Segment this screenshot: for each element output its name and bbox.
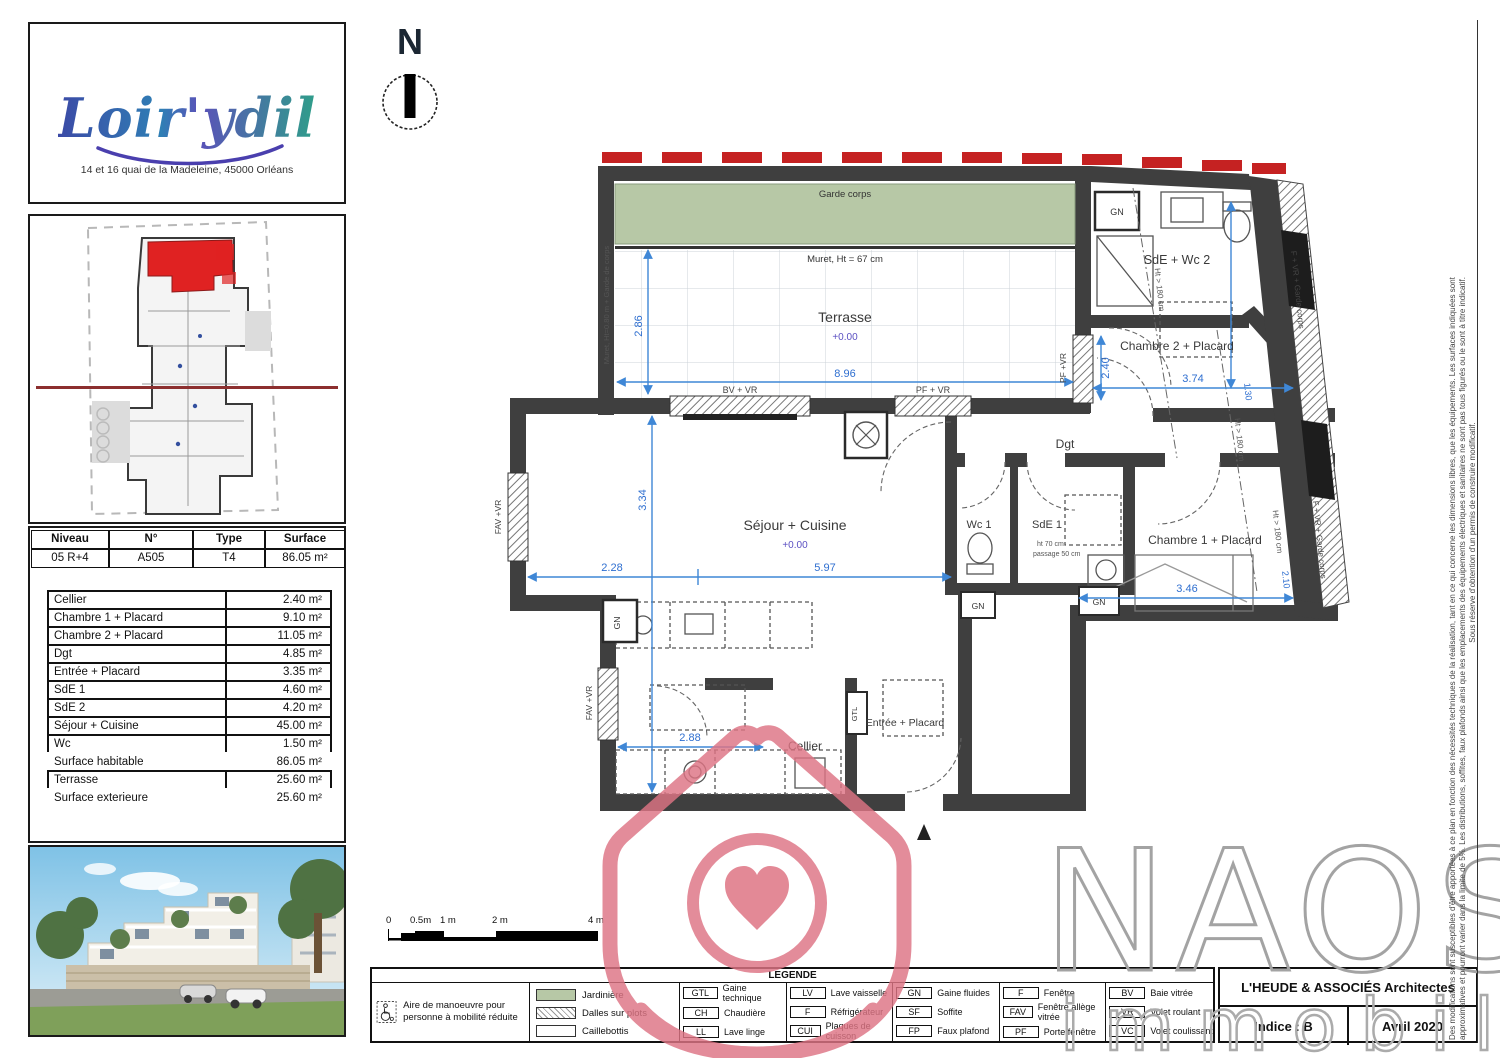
room-label-chambre1: Chambre 1 + Placard bbox=[1148, 533, 1262, 547]
garde-corps-label: Garde corps bbox=[819, 189, 872, 200]
table-row: Wc1.50 m² bbox=[47, 734, 332, 754]
scale-tick: 0 bbox=[386, 915, 391, 926]
brand-logo-text: Loir'ydil bbox=[58, 86, 317, 150]
table-row: Terrasse25.60 m² bbox=[47, 770, 332, 790]
wall-label-fav-vr-bottom: FAV +VR bbox=[584, 686, 594, 721]
floor-plan: Terrasse +0.00 Séjour + Cuisine +0.00 Ce… bbox=[365, 140, 1450, 885]
room-label-sde1: SdE 1 bbox=[1032, 519, 1062, 531]
swatch-caillebottis bbox=[536, 1025, 576, 1037]
unit-type: T4 bbox=[193, 549, 265, 568]
swatch-jardiniere bbox=[536, 989, 576, 1001]
dim-130: 1.30 bbox=[1242, 382, 1254, 400]
legend: LEGENDE Aire de manoeuvre pour personne … bbox=[370, 967, 1215, 1043]
room-label-chambre2: Chambre 2 + Placard bbox=[1120, 339, 1234, 353]
room-label-sdewc2: SdE + Wc 2 bbox=[1144, 253, 1210, 267]
scale-bar: 0 0.5m 1 m 2 m 4 m bbox=[380, 915, 710, 951]
surface-tables-box: Niveau N° Type Surface 05 R+4 A505 T4 86… bbox=[28, 526, 346, 843]
table-row: Chambre 2 + Placard11.05 m² bbox=[47, 626, 332, 646]
level-sejour: +0.00 bbox=[782, 540, 808, 551]
unit-col-type: Type bbox=[193, 530, 265, 549]
site-plan-box bbox=[28, 214, 346, 524]
room-label-entree: Entrée + Placard bbox=[866, 717, 945, 729]
dim-sejour-b: 5.97 bbox=[814, 562, 835, 574]
gn-label: GN bbox=[972, 601, 985, 611]
legend-swatches: Jardinière Dalles sur plots Caillebottis bbox=[530, 983, 680, 1041]
north-arrow: N bbox=[378, 22, 448, 137]
wall-label-fav-vr-left: FAV +VR bbox=[493, 500, 503, 535]
legend-title: LEGENDE bbox=[372, 969, 1213, 983]
brand-logo: Loir'ydil bbox=[30, 86, 344, 150]
legend-codes: GTLGaine technique CHChaudière LLLave li… bbox=[680, 983, 1213, 1041]
table-row: Chambre 1 + Placard9.10 m² bbox=[47, 608, 332, 628]
building-photo bbox=[28, 845, 346, 1037]
room-label-sejour: Séjour + Cuisine bbox=[743, 517, 846, 533]
dim-210: 2.10 bbox=[1280, 570, 1292, 588]
scale-tick: 0.5m bbox=[410, 915, 431, 926]
wall-label-pf-vr-right: PF +VR bbox=[1058, 353, 1068, 383]
unit-surface: 86.05 m² bbox=[265, 549, 345, 568]
table-row: SdE 24.20 m² bbox=[47, 698, 332, 718]
room-label-wc1: Wc 1 bbox=[966, 519, 991, 531]
dim-terrace-w: 8.96 bbox=[834, 368, 855, 380]
dim-sejour-h: 3.34 bbox=[637, 489, 649, 510]
dim-chambre1: 3.46 bbox=[1176, 583, 1197, 595]
unit-niveau: 05 R+4 bbox=[31, 549, 109, 568]
scale-tick: 4 m bbox=[588, 915, 604, 926]
ht70-label: ht 70 cm bbox=[1037, 541, 1064, 548]
legal-disclaimer: Des modifications sont susceptibles d'êt… bbox=[1448, 25, 1480, 1040]
level-terrasse: +0.00 bbox=[832, 332, 858, 343]
room-label-dgt: Dgt bbox=[1056, 437, 1075, 451]
indice: Indice : B bbox=[1220, 1007, 1349, 1045]
disclaimer-line: approximatives et pourront varier dans l… bbox=[1458, 25, 1468, 1040]
room-label-cellier: Cellier bbox=[788, 739, 822, 753]
table-row-summary: Surface habitable86.05 m² bbox=[47, 752, 332, 772]
gn-label: GN bbox=[612, 617, 622, 630]
room-label-terrasse: Terrasse bbox=[818, 309, 872, 325]
dim-chambre2: 3.74 bbox=[1182, 373, 1203, 385]
unit-col-surface: Surface bbox=[265, 530, 345, 549]
logo-swoosh bbox=[90, 142, 290, 168]
table-row: Cellier2.40 m² bbox=[47, 590, 332, 610]
site-plan-map bbox=[30, 216, 344, 522]
dim-terrace-h: 2.86 bbox=[633, 315, 645, 336]
gn-label: GN bbox=[1110, 207, 1124, 217]
unit-numero: A505 bbox=[109, 549, 193, 568]
logo-box: Loir'ydil 14 et 16 quai de la Madeleine,… bbox=[28, 22, 346, 204]
table-row-summary: Surface exterieure25.60 m² bbox=[47, 788, 332, 808]
section-line bbox=[36, 386, 338, 389]
architect-name: L'HEUDE & ASSOCIÉS Architectes bbox=[1220, 969, 1476, 1007]
swatch-dalles bbox=[536, 1007, 576, 1019]
dim-kitchen: 2.88 bbox=[679, 732, 700, 744]
gtl-label: GTL bbox=[850, 707, 859, 722]
muret-left-label: Muret, Ht=0.80 m + Garde de corps bbox=[602, 246, 611, 365]
unit-col-niveau: Niveau bbox=[31, 530, 109, 549]
scale-bar-graphic bbox=[388, 929, 618, 943]
scale-tick: 1 m bbox=[440, 915, 456, 926]
table-row: Entrée + Placard3.35 m² bbox=[47, 662, 332, 682]
table-row: Dgt4.85 m² bbox=[47, 644, 332, 664]
rooms-table: Cellier2.40 m² Chambre 1 + Placard9.10 m… bbox=[47, 592, 332, 808]
entry-arrow bbox=[917, 824, 931, 840]
height-label: Ht > 180 cm bbox=[1153, 268, 1167, 312]
dim-sejour-a: 2.28 bbox=[601, 562, 622, 574]
disclaimer-line: Des modifications sont susceptibles d'êt… bbox=[1448, 25, 1458, 1040]
table-row: SdE 14.60 m² bbox=[47, 680, 332, 700]
north-letter: N bbox=[397, 22, 423, 62]
wall-label-bv-vr: BV + VR bbox=[723, 385, 758, 395]
height-lines bbox=[1133, 188, 1257, 592]
legend-pmr-text: Aire de manoeuvre pour personne à mobili… bbox=[403, 1000, 525, 1024]
muret-label: Muret, Ht = 67 cm bbox=[807, 254, 883, 265]
wheelchair-icon bbox=[376, 991, 397, 1033]
table-row: Séjour + Cuisine45.00 m² bbox=[47, 716, 332, 736]
scale-tick: 2 m bbox=[492, 915, 508, 926]
unit-col-numero: N° bbox=[109, 530, 193, 549]
building-photo-image bbox=[30, 847, 344, 1035]
dim-right: 2.40 bbox=[1100, 357, 1112, 378]
gn-label: GN bbox=[1093, 597, 1106, 607]
wall-label-pf-vr: PF + VR bbox=[916, 385, 951, 395]
unit-table: Niveau N° Type Surface 05 R+4 A505 T4 86… bbox=[31, 530, 343, 568]
sheet-border bbox=[1477, 20, 1478, 1043]
legend-pmr: Aire de manoeuvre pour personne à mobili… bbox=[372, 983, 530, 1041]
title-block: L'HEUDE & ASSOCIÉS Architectes Indice : … bbox=[1218, 967, 1478, 1043]
height-label: Ht > 180 cm bbox=[1271, 510, 1285, 554]
passage-label: passage 50 cm bbox=[1033, 551, 1081, 558]
